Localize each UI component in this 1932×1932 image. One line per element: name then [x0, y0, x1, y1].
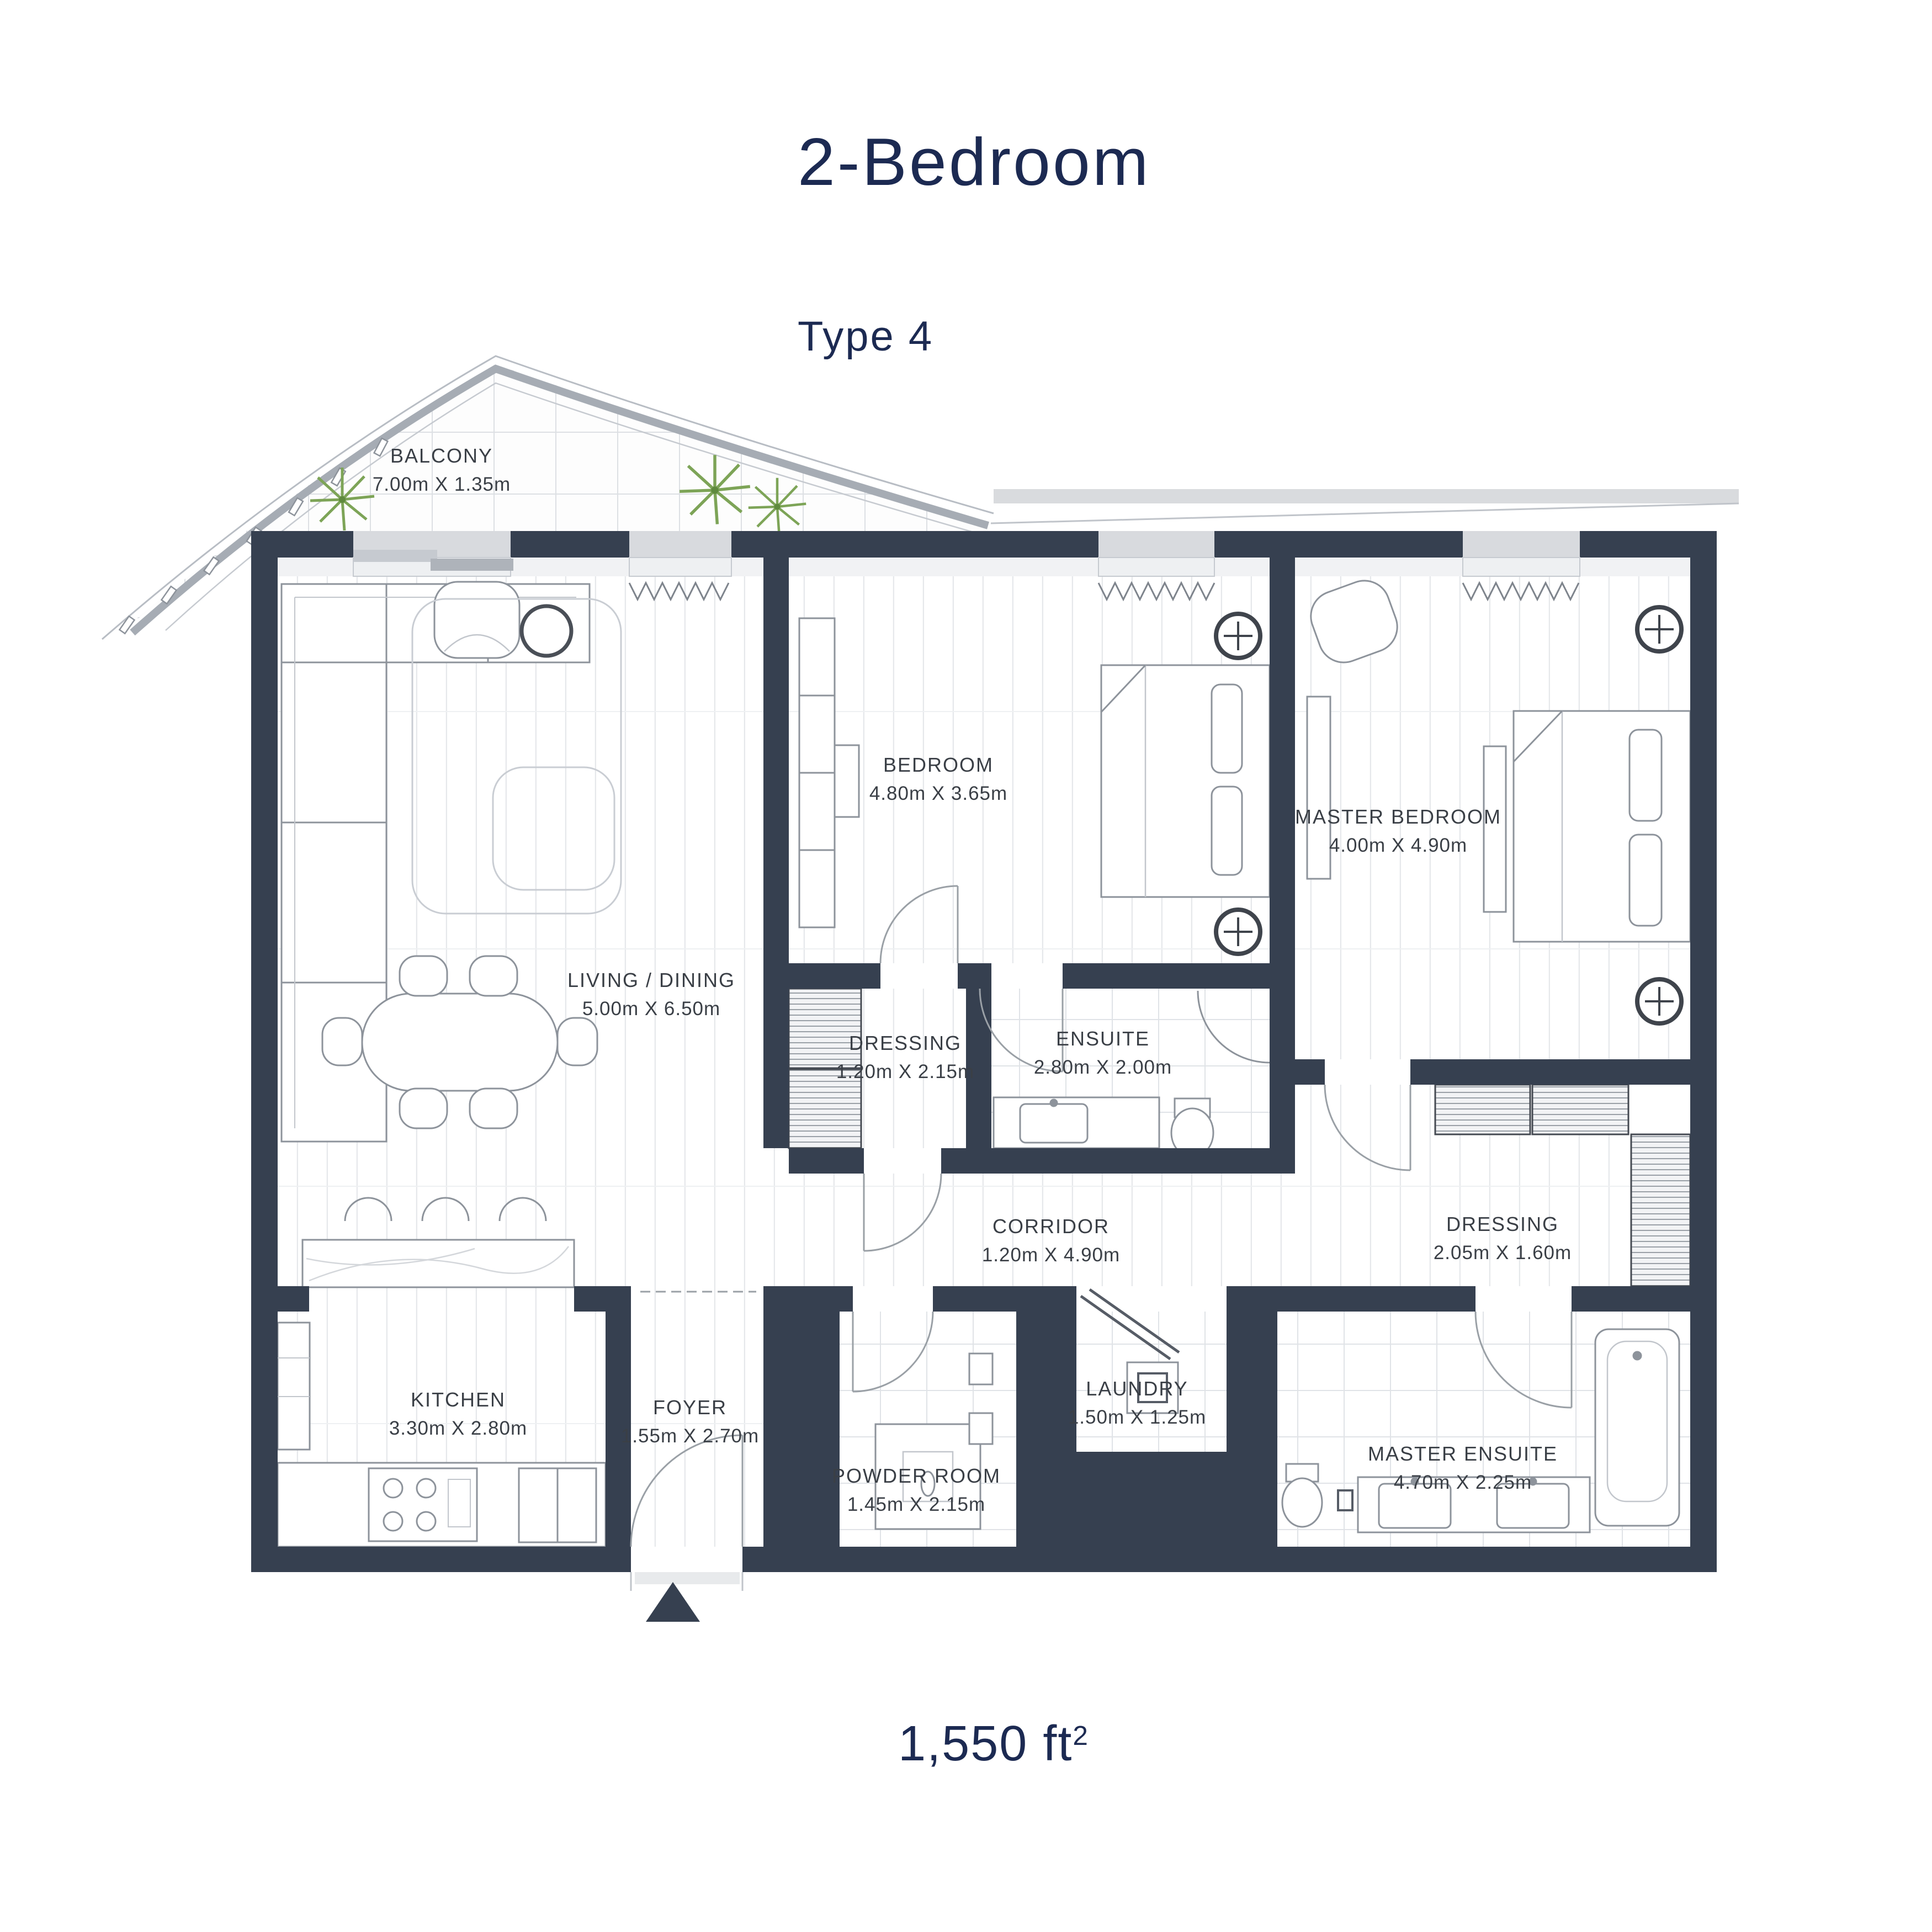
- room-label-bedroom: BEDROOM4.80m X 3.65m: [869, 751, 1007, 808]
- fridge: [519, 1468, 596, 1542]
- floor-plan-page: 2-Bedroom Type 4 BALCONY7.00m X 1.35m LI…: [0, 0, 1932, 1932]
- room-label-living: LIVING / DINING5.00m X 6.50m: [567, 966, 735, 1023]
- side-table: [522, 606, 571, 656]
- bedroom-window: [1098, 531, 1214, 558]
- room-label-dressing1: DRESSING1.20m X 2.15m: [836, 1029, 974, 1086]
- balcony-window: [629, 531, 731, 558]
- room-label-foyer: FOYER1.55m X 2.70m: [621, 1393, 759, 1451]
- page-title: 2-Bedroom: [798, 128, 1151, 195]
- room-label-laundry: LAUNDRY1.50m X 1.25m: [1068, 1374, 1206, 1432]
- master-bed: [1514, 711, 1690, 942]
- room-label-dressing2: DRESSING2.05m X 1.60m: [1434, 1210, 1572, 1267]
- entry-arrow-icon: [646, 1582, 700, 1622]
- master-window: [1463, 531, 1580, 558]
- roof-edge-band: [994, 489, 1739, 503]
- room-label-kitchen: KITCHEN3.30m X 2.80m: [389, 1386, 527, 1443]
- bed: [1101, 665, 1270, 897]
- room-label-ensuite: ENSUITE2.80m X 2.00m: [1034, 1025, 1172, 1082]
- room-label-corridor: CORRIDOR1.20m X 4.90m: [982, 1212, 1120, 1270]
- room-label-balcony: BALCONY7.00m X 1.35m: [373, 442, 511, 499]
- room-label-master-ensuite: MASTER ENSUITE4.70m X 2.25m: [1368, 1440, 1558, 1497]
- entrance: [631, 1572, 742, 1622]
- room-label-master-bedroom: MASTER BEDROOM4.00m X 4.90m: [1295, 803, 1501, 860]
- floor-plan-drawing: [0, 0, 1932, 1932]
- stove: [369, 1468, 477, 1541]
- page-subtitle: Type 4: [798, 316, 933, 358]
- armchair: [434, 582, 519, 658]
- total-area: 1,550 ft2: [898, 1716, 1089, 1772]
- room-label-powder-room: POWDER ROOM1.45m X 2.15m: [832, 1462, 1001, 1519]
